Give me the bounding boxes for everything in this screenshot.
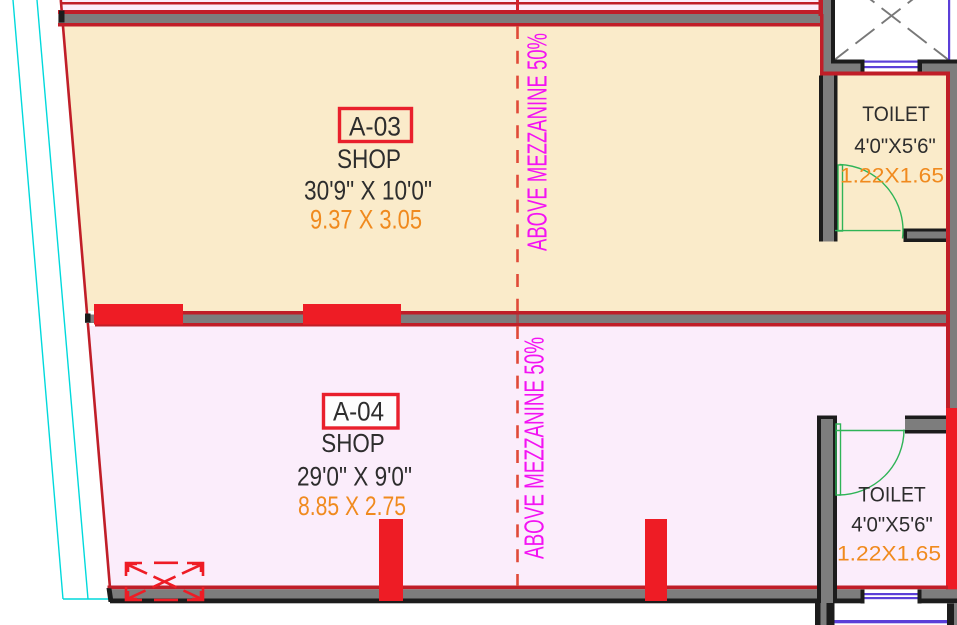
svg-text:ABOVE MEZZANINE 50%: ABOVE MEZZANINE 50% bbox=[522, 33, 553, 251]
svg-text:29'0" X 9'0": 29'0" X 9'0" bbox=[297, 462, 412, 492]
svg-text:SHOP: SHOP bbox=[337, 144, 401, 174]
svg-text:TOILET: TOILET bbox=[862, 102, 930, 126]
svg-text:A-04: A-04 bbox=[333, 397, 384, 427]
svg-text:4'0"X5'6": 4'0"X5'6" bbox=[854, 134, 936, 158]
svg-text:9.37 X 3.05: 9.37 X 3.05 bbox=[310, 205, 422, 235]
svg-text:TOILET: TOILET bbox=[858, 483, 926, 507]
svg-text:1.22X1.65: 1.22X1.65 bbox=[840, 164, 944, 188]
svg-text:30'9" X 10'0": 30'9" X 10'0" bbox=[304, 176, 432, 206]
svg-text:A-03: A-03 bbox=[349, 112, 401, 142]
svg-text:ABOVE MEZZANINE 50%: ABOVE MEZZANINE 50% bbox=[519, 337, 550, 559]
svg-text:SHOP: SHOP bbox=[321, 428, 385, 458]
svg-text:8.85 X 2.75: 8.85 X 2.75 bbox=[298, 491, 406, 521]
svg-text:1.22X1.65: 1.22X1.65 bbox=[837, 542, 941, 566]
svg-text:4'0"X5'6": 4'0"X5'6" bbox=[851, 513, 933, 537]
